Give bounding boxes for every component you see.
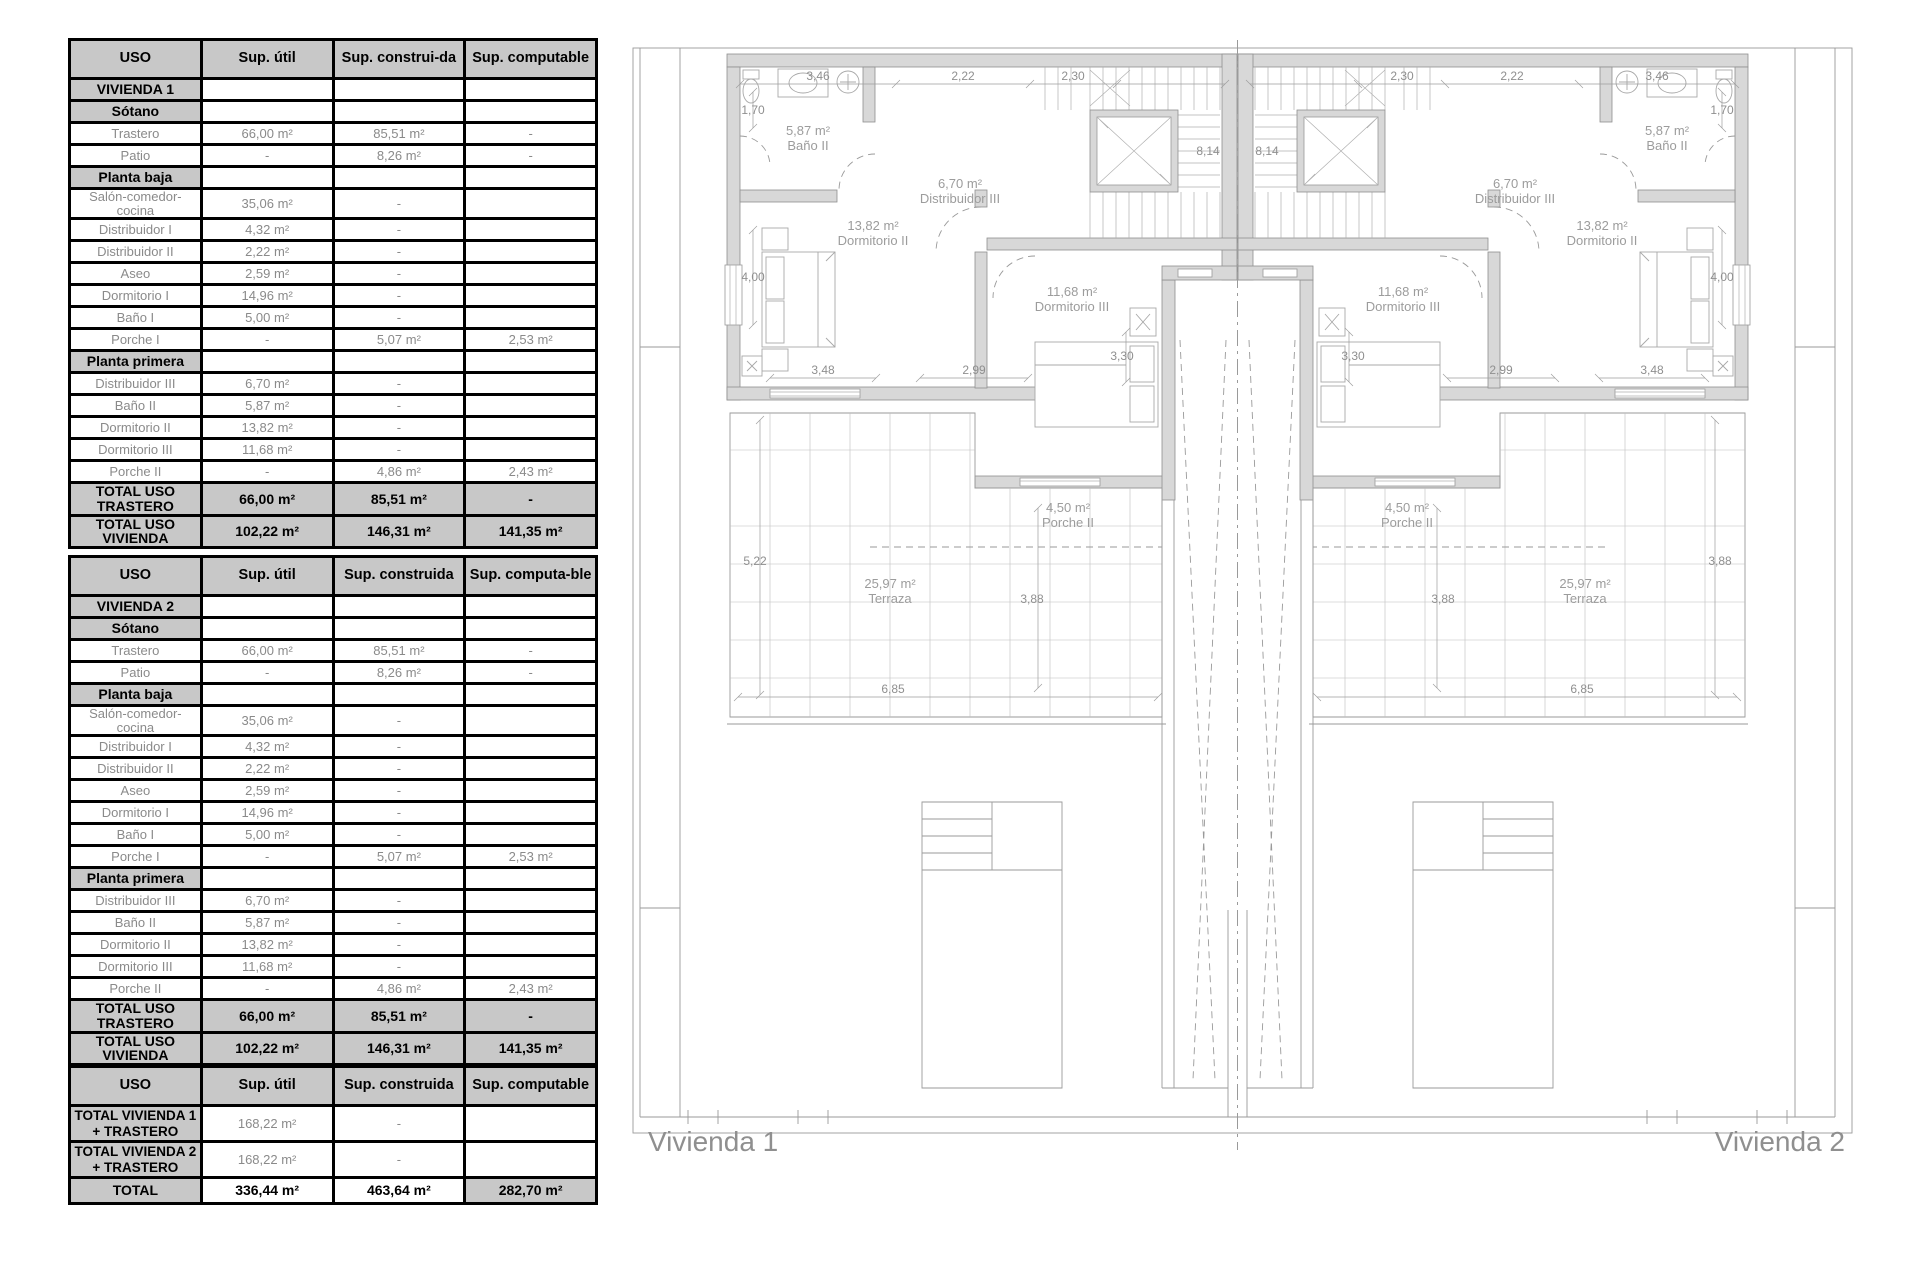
column-header: Sup. construida [333,557,465,596]
table-cell [465,934,597,956]
table-cell: TOTAL VIVIENDA 1 + TRASTERO [70,1106,202,1142]
table-cell: 5,87 m² [201,395,333,417]
table-row: Distribuidor III6,70 m²- [70,373,597,395]
dimension-label: 6,85 [1570,682,1594,696]
table-cell [201,868,333,890]
areas-table-vivienda-1: USOSup. útilSup. construi-daSup. computa… [68,38,598,549]
table-row: TOTAL USO TRASTERO66,00 m²85,51 m²- [70,1000,597,1032]
table-cell: - [333,439,465,461]
table-cell: Porche II [70,978,202,1000]
table-cell: - [333,241,465,263]
table-row: Baño I5,00 m²- [70,824,597,846]
table-row: Porche II-4,86 m²2,43 m² [70,461,597,483]
table-cell [465,868,597,890]
table-cell: - [201,846,333,868]
table-cell: 35,06 m² [201,189,333,219]
table-cell: Planta primera [70,351,202,373]
table-cell: Distribuidor II [70,241,202,263]
table-cell [465,684,597,706]
table-cell: 13,82 m² [201,417,333,439]
table-cell: 141,35 m² [465,515,597,547]
table-cell [465,241,597,263]
table-cell [465,351,597,373]
table-cell: VIVIENDA 1 [70,79,202,101]
table-row: Salón-comedor-cocina35,06 m²- [70,189,597,219]
table-cell: - [333,285,465,307]
table-cell: 463,64 m² [333,1178,465,1204]
table-cell [465,373,597,395]
table-cell [201,351,333,373]
table-cell: - [333,802,465,824]
table-cell: Dormitorio III [70,956,202,978]
dimension-label: 3,48 [811,363,835,377]
table-row: Aseo2,59 m²- [70,263,597,285]
table-cell: Baño I [70,307,202,329]
table-row: TOTAL USO VIVIENDA102,22 m²146,31 m²141,… [70,1032,597,1064]
dimension-label: 5,22 [743,554,767,568]
table-cell [465,780,597,802]
floor-plan: 5,87 m² Baño II 6,70 m² Distribuidor III… [630,40,1880,1180]
table-cell: TOTAL USO VIVIENDA [70,1032,202,1064]
room-label-area: 11,68 m² [1378,284,1429,299]
room-label-name: Porche II [1381,515,1433,530]
dimension-label: 2,22 [1500,69,1524,83]
table-cell: - [465,123,597,145]
room-label-name: Baño II [1646,138,1687,153]
table-cell: 146,31 m² [333,1032,465,1064]
table-cell: - [201,329,333,351]
table-cell: TOTAL USO TRASTERO [70,1000,202,1032]
table-cell: - [333,307,465,329]
table-cell: 6,70 m² [201,373,333,395]
table-cell: 4,86 m² [333,461,465,483]
table-cell [201,596,333,618]
table-cell: 85,51 m² [333,483,465,515]
room-label-name: Dormitorio III [1366,299,1440,314]
table-cell [333,167,465,189]
table-cell: 5,07 m² [333,846,465,868]
table-cell [465,219,597,241]
table-row: Porche I-5,07 m²2,53 m² [70,846,597,868]
header-row: USOSup. útilSup. construi-daSup. computa… [70,40,597,79]
table-cell: 85,51 m² [333,640,465,662]
table-cell: TOTAL USO VIVIENDA [70,515,202,547]
column-header: USO [70,1067,202,1106]
table-row: Baño I5,00 m²- [70,307,597,329]
table-cell [333,79,465,101]
dimension-label: 3,46 [806,69,830,83]
table-cell: - [333,373,465,395]
dimension-label: 1,70 [1710,103,1734,117]
table-cell: 85,51 m² [333,1000,465,1032]
room-label-area: 5,87 m² [786,123,831,138]
table-cell: 66,00 m² [201,640,333,662]
column-header: Sup. computable [465,1067,597,1106]
table-cell: Dormitorio II [70,934,202,956]
dimension-label: 3,48 [1640,363,1664,377]
room-label-area: 6,70 m² [1493,176,1538,191]
table-cell: 85,51 m² [333,123,465,145]
table-cell: - [201,461,333,483]
table-cell [465,189,597,219]
table-cell: - [333,263,465,285]
table-cell: Distribuidor III [70,890,202,912]
dimension-label: 4,00 [741,270,765,284]
table-cell: 282,70 m² [465,1178,597,1204]
table-cell [465,758,597,780]
table-row: Distribuidor I4,32 m²- [70,736,597,758]
dimension-label: 2,99 [1489,363,1513,377]
table-row: Planta primera [70,351,597,373]
table-row: Trastero66,00 m²85,51 m²- [70,640,597,662]
table-cell [465,395,597,417]
table-cell [333,618,465,640]
table-cell: Sótano [70,618,202,640]
dimension-label: 4,00 [1710,270,1734,284]
table-cell: 5,00 m² [201,824,333,846]
table-row: Trastero66,00 m²85,51 m²- [70,123,597,145]
table-cell [201,618,333,640]
table-cell: - [333,1106,465,1142]
table-cell: Dormitorio II [70,417,202,439]
table-cell [465,263,597,285]
table-row: Planta baja [70,167,597,189]
table-row: Dormitorio I14,96 m²- [70,285,597,307]
table-cell [333,868,465,890]
table-cell: - [333,780,465,802]
table-cell: TOTAL USO TRASTERO [70,483,202,515]
table-cell: 66,00 m² [201,1000,333,1032]
table-cell: - [465,662,597,684]
table-cell: Aseo [70,263,202,285]
table-row: Salón-comedor-cocina35,06 m²- [70,706,597,736]
dimension-label: 3,88 [1708,554,1732,568]
room-label-name: Porche II [1042,515,1094,530]
table-cell: - [333,706,465,736]
table-row: TOTAL VIVIENDA 2 + TRASTERO168,22 m²- [70,1142,597,1178]
room-label-area: 5,87 m² [1645,123,1690,138]
table-cell: - [333,417,465,439]
table-cell: 2,53 m² [465,329,597,351]
table-row: Sótano [70,618,597,640]
table-cell: - [333,1142,465,1178]
dimension-label: 2,30 [1061,69,1085,83]
table-cell: - [465,483,597,515]
table-cell [465,417,597,439]
table-cell [201,79,333,101]
dimension-label: 3,30 [1110,349,1134,363]
table-row: Planta primera [70,868,597,890]
table-cell: Porche II [70,461,202,483]
column-header: Sup. construida [333,1067,465,1106]
column-header: Sup. construi-da [333,40,465,79]
room-label-name: Terraza [868,591,912,606]
table-cell: 13,82 m² [201,934,333,956]
table-cell: 2,22 m² [201,758,333,780]
room-label-name: Distribuidor III [1475,191,1555,206]
room-label-area: 25,97 m² [864,576,916,591]
table-cell [333,351,465,373]
room-label-area: 13,82 m² [847,218,899,233]
table-cell [465,802,597,824]
table-cell [465,706,597,736]
dimension-label: 2,99 [962,363,986,377]
table-cell: Dormitorio I [70,285,202,307]
table-cell [465,285,597,307]
table-cell: - [333,395,465,417]
table-cell [201,167,333,189]
dimension-label: 6,85 [881,682,905,696]
table-cell [465,1106,597,1142]
table-cell: Trastero [70,640,202,662]
areas-table-vivienda-2: USOSup. útilSup. construidaSup. computa-… [68,555,598,1066]
table-cell [333,101,465,123]
table-cell: Dormitorio III [70,439,202,461]
dimension-label: 3,30 [1341,349,1365,363]
table-cell [465,307,597,329]
dimension-label: 3,88 [1020,592,1044,606]
room-label-name: Terraza [1563,591,1607,606]
column-header: USO [70,40,202,79]
table-cell: 8,26 m² [333,145,465,167]
table-cell: Salón-comedor-cocina [70,189,202,219]
dimension-label: 3,46 [1645,69,1669,83]
table-row: VIVIENDA 1 [70,79,597,101]
table-cell [465,101,597,123]
table-cell: Porche I [70,846,202,868]
table-cell [465,890,597,912]
table-cell: Baño I [70,824,202,846]
table-cell [201,101,333,123]
table-row: TOTAL USO VIVIENDA102,22 m²146,31 m²141,… [70,515,597,547]
table-cell [465,736,597,758]
table-row: Porche I-5,07 m²2,53 m² [70,329,597,351]
table-cell: 5,87 m² [201,912,333,934]
table-cell: 2,22 m² [201,241,333,263]
table-cell: Distribuidor III [70,373,202,395]
table-row: Dormitorio II13,82 m²- [70,934,597,956]
table-cell: Patio [70,662,202,684]
table-cell: 66,00 m² [201,483,333,515]
table-cell: Dormitorio I [70,802,202,824]
table-cell: 35,06 m² [201,706,333,736]
table-row: Dormitorio III11,68 m²- [70,956,597,978]
table-cell: - [465,1000,597,1032]
table-cell: 14,96 m² [201,802,333,824]
table-row: Patio-8,26 m²- [70,662,597,684]
table-cell: - [201,978,333,1000]
table-cell: 5,00 m² [201,307,333,329]
table-cell: 146,31 m² [333,515,465,547]
dimension-label: 1,70 [741,103,765,117]
table-cell: Baño II [70,395,202,417]
table-cell [465,439,597,461]
table-cell: 141,35 m² [465,1032,597,1064]
table-row: Baño II5,87 m²- [70,395,597,417]
table-cell [333,684,465,706]
table-cell: VIVIENDA 2 [70,596,202,618]
table-cell: 66,00 m² [201,123,333,145]
table-row: Sótano [70,101,597,123]
table-cell: Distribuidor II [70,758,202,780]
table-cell: TOTAL VIVIENDA 2 + TRASTERO [70,1142,202,1178]
table-row: TOTAL USO TRASTERO66,00 m²85,51 m²- [70,483,597,515]
table-row: TOTAL VIVIENDA 1 + TRASTERO168,22 m²- [70,1106,597,1142]
table-cell: 2,59 m² [201,263,333,285]
room-label-area: 25,97 m² [1559,576,1611,591]
dimension-label: 8,14 [1255,144,1279,158]
table-cell: 14,96 m² [201,285,333,307]
column-header: USO [70,557,202,596]
table-cell [465,618,597,640]
table-cell: Planta primera [70,868,202,890]
table-row: Dormitorio II13,82 m²- [70,417,597,439]
table-row: Patio-8,26 m²- [70,145,597,167]
table-cell: Planta baja [70,167,202,189]
table-row: TOTAL336,44 m²463,64 m²282,70 m² [70,1178,597,1204]
header-row: USOSup. útilSup. construidaSup. computa-… [70,557,597,596]
table-cell: 5,07 m² [333,329,465,351]
table-row: VIVIENDA 2 [70,596,597,618]
room-label-name: Baño II [787,138,828,153]
room-label-area: 6,70 m² [938,176,983,191]
areas-table-totals: USOSup. útilSup. construidaSup. computab… [68,1065,598,1205]
table-row: Distribuidor III6,70 m²- [70,890,597,912]
table-cell: 11,68 m² [201,439,333,461]
dimension-label: 2,30 [1390,69,1414,83]
table-cell: Sótano [70,101,202,123]
table-cell: - [465,640,597,662]
room-label-name: Dormitorio III [1035,299,1109,314]
table-cell: Aseo [70,780,202,802]
dimension-label: 3,88 [1431,592,1455,606]
table-cell: 2,43 m² [465,978,597,1000]
table-cell: 4,32 m² [201,736,333,758]
table-cell: 4,86 m² [333,978,465,1000]
table-cell: Porche I [70,329,202,351]
table-cell [465,79,597,101]
table-cell: - [465,145,597,167]
table-cell: 336,44 m² [201,1178,333,1204]
column-header: Sup. computable [465,40,597,79]
room-label-area: 4,50 m² [1046,500,1091,515]
table-cell [465,167,597,189]
table-cell: 102,22 m² [201,515,333,547]
column-header: Sup. útil [201,557,333,596]
room-label-name: Distribuidor III [920,191,1000,206]
table-cell [465,1142,597,1178]
header-row: USOSup. útilSup. construidaSup. computab… [70,1067,597,1106]
table-cell: - [333,890,465,912]
table-cell: 168,22 m² [201,1142,333,1178]
table-cell: 168,22 m² [201,1106,333,1142]
table-cell: - [333,758,465,780]
table-cell: - [333,934,465,956]
table-row: Baño II5,87 m²- [70,912,597,934]
table-cell [201,684,333,706]
table-row: Distribuidor I4,32 m²- [70,219,597,241]
table-cell: 6,70 m² [201,890,333,912]
table-cell: 4,32 m² [201,219,333,241]
table-cell: Patio [70,145,202,167]
table-cell: - [201,662,333,684]
table-row: Dormitorio III11,68 m²- [70,439,597,461]
room-label-name: Dormitorio II [1567,233,1638,248]
table-cell: - [333,736,465,758]
column-header: Sup. computa-ble [465,557,597,596]
table-cell [465,956,597,978]
table-cell [465,824,597,846]
column-header: Sup. útil [201,1067,333,1106]
table-cell: - [333,912,465,934]
table-cell: - [201,145,333,167]
room-label-name: Dormitorio II [838,233,909,248]
table-row: Aseo2,59 m²- [70,780,597,802]
table-cell: Planta baja [70,684,202,706]
room-label-area: 4,50 m² [1385,500,1430,515]
table-cell: Distribuidor I [70,736,202,758]
caption-vivienda-2: Vivienda 2 [1600,1126,1845,1158]
table-cell: 2,53 m² [465,846,597,868]
room-label-area: 11,68 m² [1047,284,1098,299]
table-cell: - [333,956,465,978]
room-label-area: 13,82 m² [1576,218,1628,233]
table-cell: - [333,824,465,846]
table-cell: - [333,219,465,241]
table-cell: 2,43 m² [465,461,597,483]
table-row: Planta baja [70,684,597,706]
dimension-label: 8,14 [1196,144,1220,158]
caption-vivienda-1: Vivienda 1 [648,1126,778,1158]
table-cell: Baño II [70,912,202,934]
table-cell: TOTAL [70,1178,202,1204]
dimension-label: 2,22 [951,69,975,83]
column-header: Sup. útil [201,40,333,79]
table-cell: 2,59 m² [201,780,333,802]
table-cell: 11,68 m² [201,956,333,978]
table-cell: Distribuidor I [70,219,202,241]
table-row: Distribuidor II2,22 m²- [70,758,597,780]
table-cell: Trastero [70,123,202,145]
dwelling-unit-plan [640,48,1237,1124]
table-row: Distribuidor II2,22 m²- [70,241,597,263]
table-cell: 102,22 m² [201,1032,333,1064]
table-cell: 8,26 m² [333,662,465,684]
table-row: Porche II-4,86 m²2,43 m² [70,978,597,1000]
table-cell: Salón-comedor-cocina [70,706,202,736]
table-cell [465,596,597,618]
table-row: Dormitorio I14,96 m²- [70,802,597,824]
table-cell [333,596,465,618]
table-cell: - [333,189,465,219]
table-cell [465,912,597,934]
